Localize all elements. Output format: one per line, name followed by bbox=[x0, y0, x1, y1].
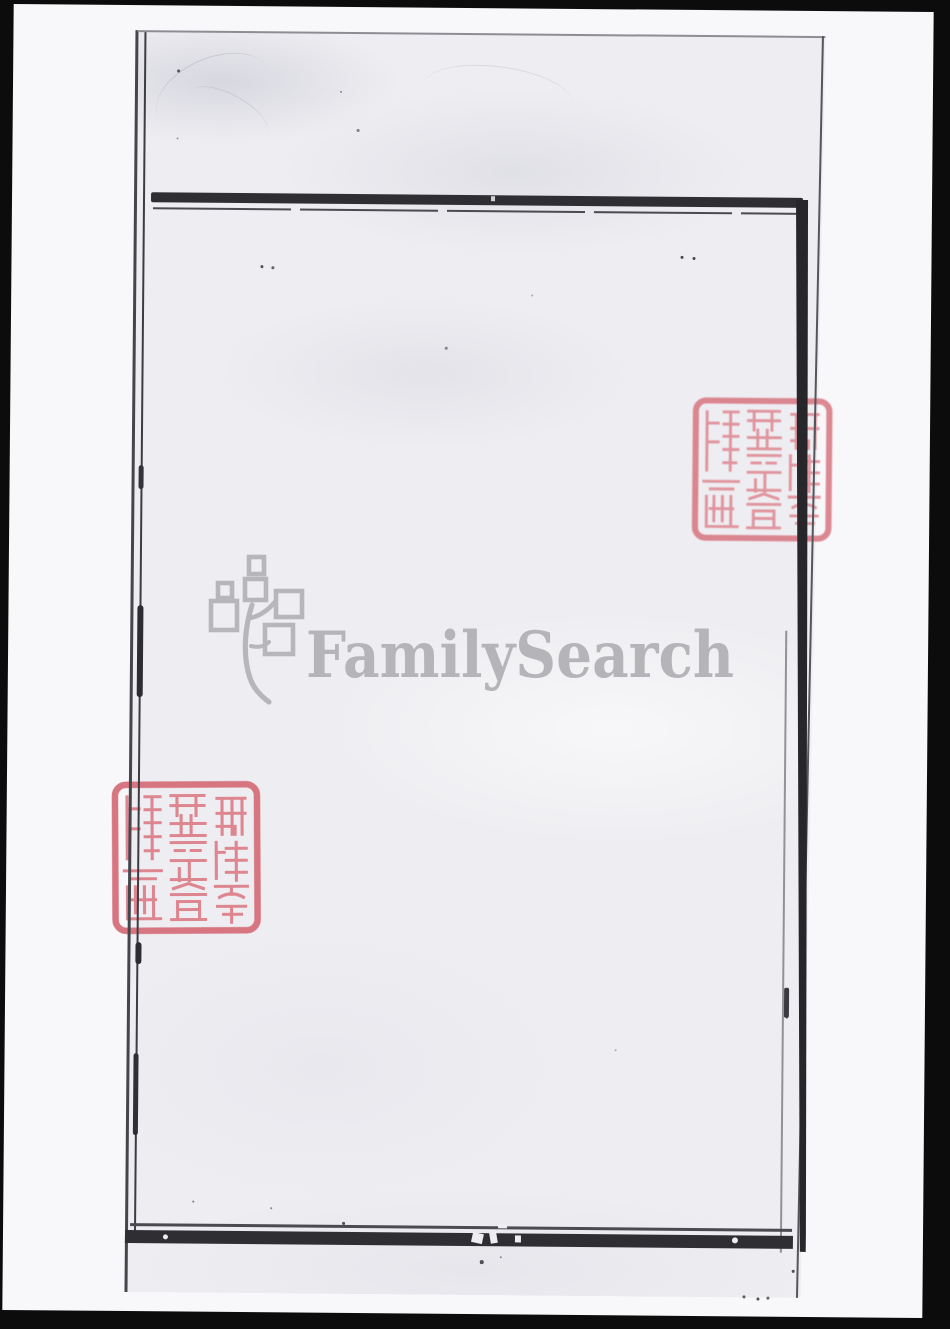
familysearch-logo: FamilySearch bbox=[205, 550, 750, 720]
bar-notch bbox=[732, 1237, 738, 1243]
ink-blob bbox=[135, 942, 141, 964]
watermark-text: FamilySearch bbox=[306, 618, 734, 693]
line-break bbox=[498, 1224, 507, 1228]
bar-notch bbox=[491, 196, 495, 201]
familysearch-watermark: FamilySearch bbox=[205, 550, 750, 720]
ink-blob bbox=[784, 988, 789, 1018]
chinese-seal-stamp-left bbox=[111, 780, 262, 935]
ink-blob bbox=[133, 1053, 139, 1135]
bar-notch bbox=[515, 1235, 521, 1242]
ink-blob bbox=[137, 605, 144, 697]
bar-notch bbox=[471, 1232, 484, 1244]
photo-background: FamilySearch bbox=[0, 0, 950, 1329]
family-tree-squares-icon bbox=[211, 557, 302, 702]
bar-notch bbox=[163, 1234, 168, 1239]
ink-blob bbox=[138, 465, 143, 489]
